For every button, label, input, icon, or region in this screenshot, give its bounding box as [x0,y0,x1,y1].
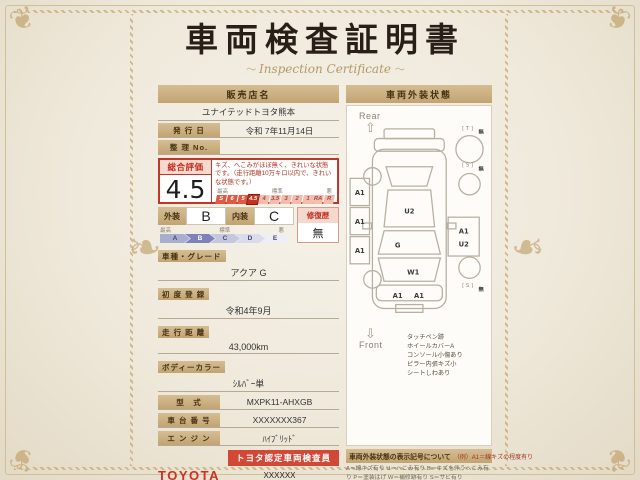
marker-left-3: A1 [355,247,365,255]
model-field: 車種・グレード アクア G [158,246,339,281]
body-color-field: ボディーカラー ｼﾙﾊﾞｰ単 [158,357,339,392]
legend-header: 車両外装状態の表示記号について （例）A1＝線キズの程度有り [346,449,492,463]
first-registration-value: 令和4年9月 [158,302,339,319]
overall-rating-right: キズ、へこみがほぼ無く、きれいな状態です。（走行距離10万キロ以内で、きれいな状… [212,160,337,202]
condition-note: タッチペン跡 [407,334,463,343]
grade-seg: A [160,234,190,243]
overall-rating-left: 総合評価 4.5 [160,160,212,202]
marker-right-2: U2 [459,240,470,248]
page-subtitle-row: ～ Inspection Certificate ～ [158,61,492,76]
first-registration-field: 初 度 登 録 令和4年9月 [158,284,339,319]
stitch-border-right [505,14,508,466]
condition-row: 外装 B 内装 C 最高 標準 悪 A B [158,207,339,243]
ref-no-label: 整 理 No. [158,140,220,154]
grade-scale-labels: 最高 標準 悪 [158,225,294,234]
mileage-label: 走 行 距 離 [158,326,209,338]
scroll-ornament-icon: ❧ [128,225,162,271]
certified-inspector-badge: トヨタ認定車両検査員 [228,450,339,466]
type-label: 型 式 [158,395,220,409]
condition-notes: タッチペン跡 ホイールカバーA コンソール小傷あり ピラー内張キズ小 シートしわ… [407,334,463,379]
corner-flourish-icon: ❦ [5,0,41,40]
repair-history-value: 無 [298,223,338,242]
condition-note: ピラー内張キズ小 [407,361,463,370]
tire-s1-label: [ S ] [462,163,473,169]
certificate-page: ❦ ❦ ❦ ❦ ❧ ❧ 車両検査証明書 ～ Inspection Certifi… [0,0,640,480]
repair-history-box: 修復歴 無 [297,207,339,243]
overall-rating-box: 総合評価 4.5 キズ、へこみがほぼ無く、きれいな状態です。（走行距離10万キロ… [158,158,339,204]
inspector-badge-row: トヨタ認定車両検査員 [158,450,339,466]
page-title: 車両検査証明書 [158,20,492,60]
car-top-view-diagram: A1 A1 A1 U2 G W1 A1 A1 A1 U2 [ T ] [349,124,491,324]
overall-rating-score: 4.5 [160,175,211,204]
details-column: 販売店名 ユナイテッドトヨタ熊本 発 行 日 令和 7年11月14日 整 理 N… [158,85,339,480]
ref-no-row: 整 理 No. [158,140,339,155]
corner-flourish-icon: ❦ [600,438,636,479]
tire-t-label: [ T ] [462,126,473,132]
exterior-panel-header: 車両外装状態 [346,85,492,103]
scale-label-best: 最高 [217,187,228,195]
scale-label-standard: 標準 [272,187,283,195]
tire-s2-value: 無 [478,285,484,293]
body-color-label: ボディーカラー [158,361,225,373]
grade-label-standard: 標準 [219,226,230,234]
legend-title: 車両外装状態の表示記号について [349,451,451,461]
ref-no-value [220,140,339,154]
legend-example: （例）A1＝線キズの程度有り [454,452,533,461]
type-row: 型 式 MXPK11-AHXGB [158,395,339,410]
chassis-value: XXXXXXX367 [220,413,339,427]
scale-cell: S [215,195,227,204]
mileage-value: 43,000km [158,340,339,354]
exterior-label: 外装 [158,207,186,225]
chassis-label: 車 台 番 号 [158,413,220,427]
grade-scale: A B C D E [158,234,294,243]
marker-right-1: A1 [459,228,469,236]
legend-lines: A＝線キズ有り U＝へこみ有り B＝キズを伴うへこみ有り P＝塗装はげ W＝補修… [346,465,492,480]
front-label: Front [359,340,383,350]
grade-label-best: 最高 [160,226,171,234]
condition-note: シートしわあり [407,370,463,379]
rating-scale-labels: 最高 標準 悪 [215,187,334,195]
exterior-column: 車両外装状態 Rear ⇧ [346,85,492,480]
condition-grades: 外装 B 内装 C 最高 標準 悪 A B [158,207,294,243]
scale-cell: 6 [226,195,238,204]
subtitle-decor-left: ～ [246,65,255,76]
body-color-value: ｼﾙﾊﾞｰ単 [158,375,339,392]
toyota-logo: TOYOTA [158,468,220,480]
type-value: MXPK11-AHXGB [220,395,339,409]
brand-row: TOYOTA XXXXXX [158,468,339,480]
model-label: 車種・グレード [158,250,226,262]
model-value: アクア G [158,264,339,281]
issue-date-row: 発 行 日 令和 7年11月14日 [158,123,339,138]
condition-note: コンソール小傷あり [407,352,463,361]
scale-cell: 2 [291,195,303,204]
seller-header: 販売店名 [158,85,339,103]
subtitle-decor-right: ～ [395,65,404,76]
scale-cell: R [323,195,335,204]
tire-t-value: 無 [478,128,484,136]
marker-roof: U2 [404,207,415,215]
seller-name: ユナイテッドトヨタ熊本 [158,103,339,121]
tire-s2-label: [ S ] [462,283,473,289]
stitch-border-top [14,10,626,13]
rating-scale: S 6 5 4.5 4 3.5 3 2 1 RA R [215,195,334,204]
interior-label: 内装 [226,207,254,225]
exterior-grade-value: B [186,207,226,225]
marker-left-1: A1 [355,189,365,197]
corner-flourish-icon: ❦ [600,0,636,40]
scale-label-worst: 悪 [326,187,332,195]
chassis-row: 車 台 番 号 XXXXXXX367 [158,413,339,428]
scale-cell: 3 [280,195,292,204]
interior-grade-value: C [254,207,294,225]
condition-note: ホイールカバーA [407,343,463,352]
grade-label-worst: 悪 [278,226,284,234]
marker-front-2: A1 [414,292,424,300]
engine-label: エ ン ジ ン [158,431,220,445]
scale-cell: 3.5 [269,195,281,204]
marker-front-1: A1 [393,292,403,300]
car-diagram-panel: Rear ⇧ [346,105,492,446]
corner-flourish-icon: ❦ [5,438,41,479]
issue-date-value: 令和 7年11月14日 [220,123,339,137]
first-registration-label: 初 度 登 録 [158,288,209,300]
scroll-ornament-icon: ❧ [511,225,545,271]
marker-glass: G [395,241,401,249]
mileage-field: 走 行 距 離 43,000km [158,322,339,354]
marker-hood: W1 [407,268,419,276]
inspector-id: XXXXXX [220,471,339,480]
overall-rating-label: 総合評価 [160,160,211,175]
engine-value: ﾊｲﾌﾞﾘｯﾄﾞ [220,431,339,445]
tire-s1-value: 無 [478,165,484,173]
issue-date-label: 発 行 日 [158,123,220,137]
page-subtitle: Inspection Certificate [259,62,391,76]
legend-line: A＝線キズ有り U＝へこみ有り B＝キズを伴うへこみ有り P＝塗装はげ W＝補修… [346,465,492,480]
engine-row: エ ン ジ ン ﾊｲﾌﾞﾘｯﾄﾞ [158,431,339,446]
repair-history-label: 修復歴 [298,208,338,223]
overall-rating-description: キズ、へこみがほぼ無く、きれいな状態です。（走行距離10万キロ以内で、きれいな状… [215,162,334,187]
marker-left-2: A1 [355,218,365,226]
